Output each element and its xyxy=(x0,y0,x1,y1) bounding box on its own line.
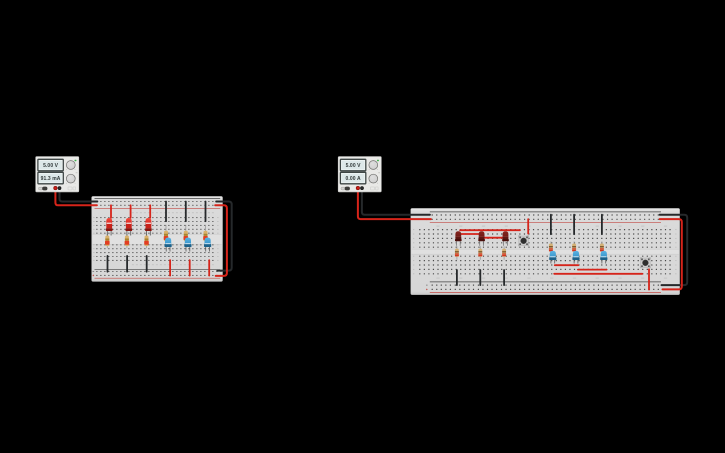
svg-text:0.00 A: 0.00 A xyxy=(346,176,361,182)
svg-text:91.3 mA: 91.3 mA xyxy=(41,176,61,182)
svg-text:5.00 V: 5.00 V xyxy=(43,163,59,169)
svg-text:5.00 V: 5.00 V xyxy=(346,163,362,169)
